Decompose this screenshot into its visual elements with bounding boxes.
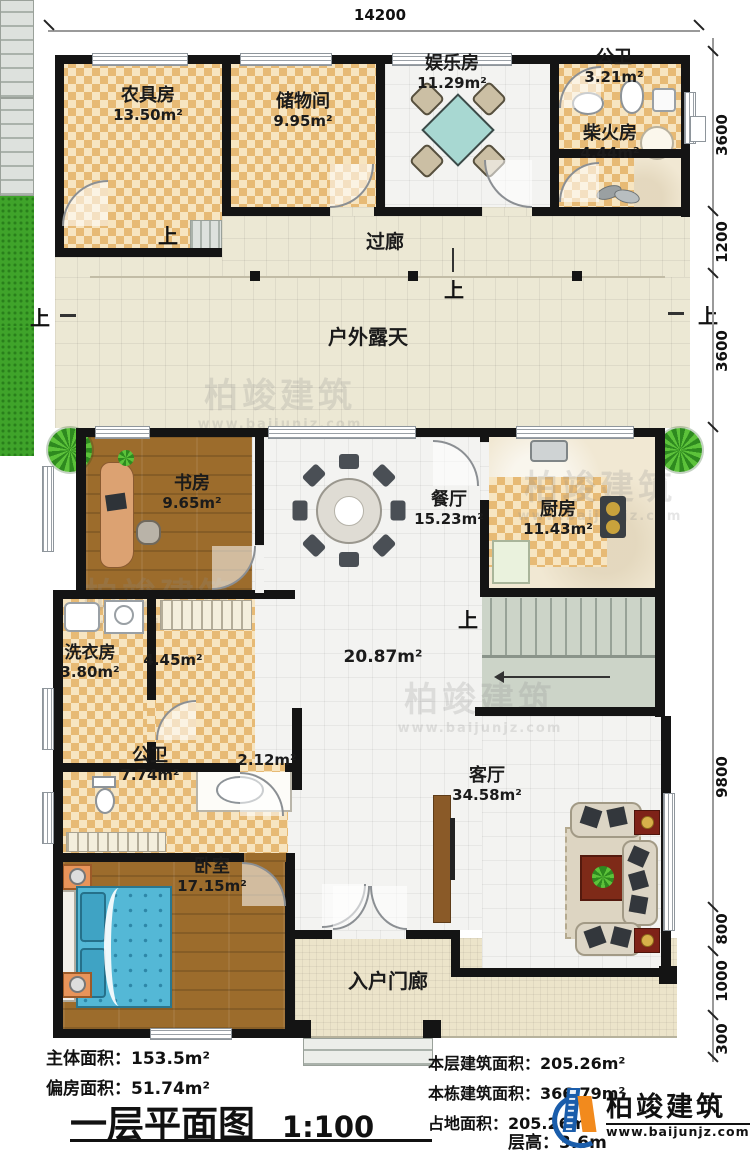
room-name: 柴火房 (580, 124, 639, 145)
floor-area-label: 本层建筑面积： (428, 1054, 540, 1073)
desk-plant (118, 450, 134, 466)
room-name: 入户门廊 (348, 970, 428, 993)
room-label-bedroom: 卧室 17.15m² (177, 857, 247, 895)
dimension-right-value: 800 (713, 909, 731, 949)
window (150, 1028, 232, 1040)
wall (475, 707, 665, 716)
room-label-storage: 储物间 9.95m² (273, 92, 332, 130)
table-plant (592, 866, 614, 888)
wall (480, 588, 665, 597)
room-area: 9.95m² (273, 113, 332, 130)
dimension-right-value: 1200 (713, 220, 731, 264)
door-gap (330, 207, 374, 216)
dimension-right-value: 1000 (713, 959, 731, 1003)
window (516, 426, 634, 439)
room-name: 农具房 (113, 86, 183, 107)
wall (376, 55, 385, 216)
lamp (69, 976, 86, 993)
door-gap (332, 930, 406, 939)
window (663, 793, 675, 931)
stair-rail (482, 655, 655, 658)
sofa-pillow (629, 895, 649, 915)
watermark-url: www.baijunjz.com (330, 721, 630, 736)
tv-cabinet (433, 795, 451, 923)
porch-column (423, 1020, 441, 1038)
floor-corridor-left (55, 257, 222, 277)
boundary-post (250, 271, 260, 281)
lamp (69, 868, 86, 885)
room-name: 娱乐房 (417, 54, 487, 75)
brand-url: www.baijunjz.com (606, 1123, 750, 1139)
up-label: 上 (158, 220, 178, 249)
boundary-post (408, 271, 418, 281)
dimension-right-value: 3600 (713, 329, 731, 373)
pillow (80, 892, 106, 942)
outdoor-steps-left (0, 0, 34, 98)
grass-strip-left (0, 196, 34, 326)
up-label: 上 (698, 300, 718, 329)
window (42, 688, 54, 750)
kitchen-appliance (492, 540, 530, 584)
window (92, 53, 188, 66)
watermark: 柏竣建筑 www.baijunjz.com (330, 672, 630, 736)
door-gap (244, 853, 286, 862)
room-name: 公卫 (120, 746, 179, 767)
room-label-bath-main: 公卫 7.74m² (120, 746, 179, 784)
floor-height-label: 层高： (508, 1133, 559, 1153)
area-label-hall: 4.45m² (143, 652, 202, 669)
wall (292, 708, 302, 790)
up-label: 上 (30, 302, 50, 331)
window (42, 466, 54, 552)
closet (160, 600, 252, 630)
stove-burner (606, 520, 620, 534)
watermark: 柏竣建筑 www.baijunjz.com (130, 368, 430, 432)
desk-chair (136, 520, 161, 545)
room-label-farm-tool: 农具房 13.50m² (113, 86, 183, 124)
room-area: 11.29m² (417, 75, 487, 92)
dimension-line-top (48, 30, 700, 32)
room-label-outdoor: 户外露天 (328, 326, 408, 349)
room-label-bath-top: 公卫 3.21m² (584, 48, 643, 86)
room-name: 餐厅 (414, 490, 484, 511)
room-name: 卧室 (177, 857, 247, 878)
room-label-porch: 入户门廊 (348, 970, 428, 993)
brand-name: 柏竣建筑 (606, 1094, 750, 1121)
mini-stair (190, 220, 222, 250)
wall (285, 853, 295, 1035)
dimension-right-value: 9800 (713, 755, 731, 799)
toilet-bowl (95, 788, 115, 814)
wall (222, 207, 690, 216)
main-area-value: 153.5m² (131, 1049, 210, 1069)
floor-corridor (222, 216, 690, 277)
up-tick (452, 248, 454, 272)
grass-strip-right (0, 326, 34, 456)
main-area-row: 主体面积：153.5m² (46, 1044, 210, 1069)
dim-tick (693, 19, 704, 30)
sofa-pillow (606, 806, 627, 827)
room-label-study: 书房 9.65m² (162, 474, 221, 512)
room-label-laundry: 洗衣房 3.80m² (60, 644, 119, 681)
up-label: 上 (444, 274, 464, 303)
porch-column (293, 1020, 311, 1038)
door-gap (255, 545, 264, 593)
room-area: 3.80m² (60, 664, 119, 681)
stair-arrow-head (494, 671, 504, 683)
watermark-brand: 柏竣建筑 (130, 368, 430, 417)
room-area: 3.21m² (584, 69, 643, 86)
chair (391, 501, 406, 521)
window (268, 426, 416, 439)
porch-edge-line (295, 1036, 677, 1038)
brand-logo-icon (556, 1086, 600, 1138)
room-name: 储物间 (273, 92, 332, 113)
dim-tick (43, 19, 54, 30)
dimension-top-value: 14200 (345, 6, 415, 24)
room-area: 2.12m² (237, 752, 296, 769)
wall (451, 930, 460, 977)
room-name: 户外露天 (328, 326, 408, 349)
wall (55, 55, 64, 257)
room-area: 34.58m² (452, 787, 522, 804)
desk (100, 462, 134, 568)
bath-shelf (66, 832, 166, 852)
dimension-right-value: 3600 (713, 113, 731, 157)
floor-plan-canvas: 柏竣建筑 www.baijunjz.com 柏竣建筑 www.baijunjz.… (0, 0, 750, 1158)
window (95, 426, 150, 439)
area-label-great-hall: 20.87m² (344, 648, 423, 668)
washing-machine (652, 88, 676, 112)
room-area: 9.65m² (162, 495, 221, 512)
room-label-living: 客厅 34.58m² (452, 766, 522, 804)
dimension-right-value: 300 (713, 1019, 731, 1059)
title-underline (70, 1139, 432, 1142)
exterior-box (690, 116, 706, 142)
side-table-lamp (641, 816, 654, 829)
room-label-dining: 餐厅 15.23m² (414, 490, 484, 528)
blanket-fold (104, 888, 134, 1006)
wall (655, 428, 665, 717)
chair (339, 454, 359, 469)
tv (450, 818, 455, 880)
window (240, 53, 332, 66)
room-area: 4.44m² (580, 145, 639, 162)
footprint-label: 占地面积： (428, 1114, 508, 1133)
sofa-small (575, 922, 641, 956)
room-area: 7.74m² (120, 767, 179, 784)
floor-area-row: 本层建筑面积：205.26m² (428, 1050, 625, 1074)
room-name: 客厅 (452, 766, 522, 787)
room-area: 17.15m² (177, 878, 247, 895)
chair (339, 552, 359, 567)
room-name: 洗衣房 (60, 644, 119, 664)
chair (293, 501, 308, 521)
up-tick (668, 312, 684, 315)
building-area-label: 本栋建筑面积： (428, 1084, 540, 1103)
outdoor-steps-right (0, 98, 34, 196)
room-name: 书房 (162, 474, 221, 495)
porch-steps (303, 1038, 433, 1066)
stove-burner (606, 502, 620, 516)
room-area: 13.50m² (113, 107, 183, 124)
area-label-passage: 2.12m² (237, 752, 296, 769)
window (42, 792, 54, 844)
main-area-label: 主体面积： (46, 1049, 131, 1069)
wall (76, 428, 86, 599)
room-label-firewood: 柴火房 4.44m² (580, 124, 639, 162)
porch-column (659, 966, 677, 984)
floor-area-value: 205.26m² (540, 1054, 625, 1073)
up-label: 上 (458, 604, 478, 633)
room-area: 4.45m² (143, 652, 202, 669)
wall (222, 55, 231, 216)
wall (55, 248, 222, 257)
toilet (92, 776, 116, 788)
monitor (105, 493, 127, 512)
stair-arrow (500, 676, 610, 678)
door-gap (147, 700, 156, 742)
room-label-kitchen: 厨房 11.43m² (523, 500, 593, 538)
dining-table-center (334, 496, 364, 526)
room-label-corridor: 过廊 (366, 232, 404, 254)
room-name: 公卫 (584, 48, 643, 69)
room-name: 厨房 (523, 500, 593, 521)
up-tick (60, 314, 76, 317)
boundary-post (572, 271, 582, 281)
stair-treads (490, 598, 648, 656)
brand-logo-text: 柏竣建筑 www.baijunjz.com (606, 1094, 750, 1139)
room-area: 15.23m² (414, 511, 484, 528)
washer-drum (114, 605, 134, 625)
kitchen-sink (530, 440, 568, 462)
room-area: 20.87m² (344, 648, 423, 668)
wall (460, 968, 676, 977)
brand-logo: 柏竣建筑 www.baijunjz.com (556, 1086, 750, 1138)
laundry-sink (64, 602, 100, 632)
room-label-entertainment: 娱乐房 11.29m² (417, 54, 487, 92)
wall (550, 55, 559, 216)
room-name: 过廊 (366, 232, 404, 254)
room-area: 11.43m² (523, 521, 593, 538)
side-table-lamp (641, 934, 654, 947)
door-gap (482, 207, 532, 216)
